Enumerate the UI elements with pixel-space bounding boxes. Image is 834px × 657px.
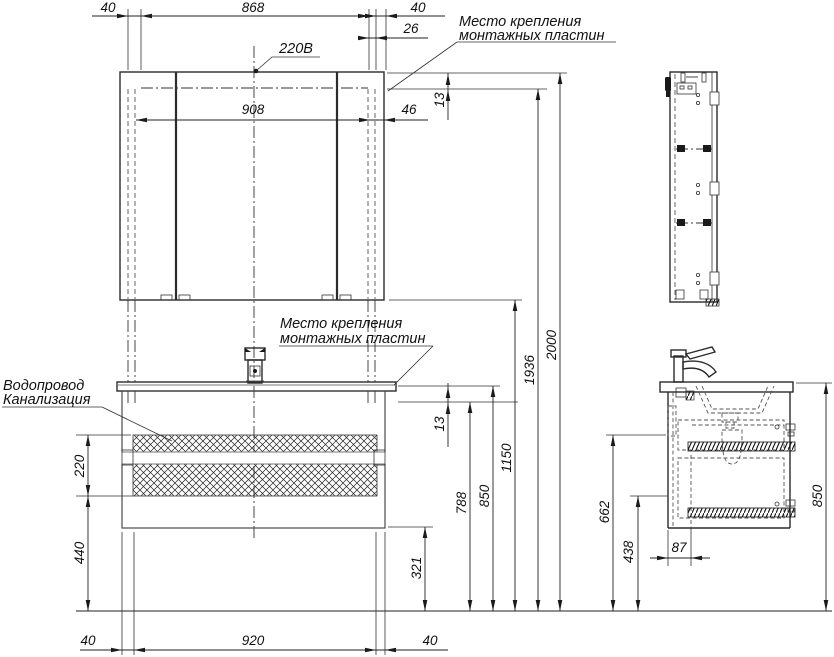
dim-height-cabinet-bottom: 321 [409,557,424,580]
door-bottom-hinges [161,295,351,300]
dim-mirror-width: 908 [242,102,265,117]
drawers-side [673,392,795,528]
dim-plate-gap-mid: 13 [432,416,447,432]
dim-side-clearance: 438 [621,540,636,563]
dimension-lines [80,16,826,650]
dim-utility-zone-height: 220 [72,454,87,478]
dim-bottom-right-offset: 40 [422,633,438,648]
dim-height-total: 2000 [544,329,559,361]
drawer-slide-lower [688,508,795,517]
power-leader [256,57,320,71]
label-mount-mid-line2: монтажных пластин [280,331,425,347]
faucet-side [671,347,716,382]
hanging-bracket [665,73,706,97]
drawer-gap-band [121,452,386,464]
dim-side-utility-height: 662 [597,500,612,523]
bottom-fittings [676,290,719,306]
dim-clearance-below: 440 [72,541,87,564]
mount-mid-leader [394,346,433,385]
label-sewerage: Канализация [3,392,91,408]
label-mount-top-line2: монтажных пластин [459,28,604,44]
dim-mirror-right-inset: 46 [401,102,417,117]
dim-top-right-offset: 40 [410,0,426,15]
dim-plate-width: 26 [402,21,419,36]
faucet-front [245,348,265,383]
dim-height-plates: 1936 [522,354,537,385]
dim-side-inset: 87 [671,540,687,555]
faucet-lever [686,347,715,359]
dim-top-span: 868 [242,0,265,15]
dim-bottom-span: 920 [242,633,265,648]
drawer-slide-upper [688,442,795,451]
dim-bottom-left-offset: 40 [80,633,96,648]
technical-drawing: 40 868 40 26 908 46 13 13 2000 1936 1150… [0,0,834,657]
screw-marks [696,93,699,284]
utility-zone-hatch [133,435,377,496]
dim-side-height: 850 [810,484,825,507]
hinge-block [665,77,671,91]
dim-height-vanity-plates: 788 [454,491,469,514]
dim-height-vanity-top: 850 [477,484,492,507]
label-mount-mid-line1: Место крепления [280,316,402,332]
dim-plate-gap-top: 13 [432,92,447,108]
mirror-cabinet-side [665,72,719,306]
vanity-side [660,347,795,528]
label-power-outlet: 220В [278,41,313,57]
dim-top-left-offset: 40 [100,0,116,15]
mirror-cabinet-front [120,72,384,404]
shelves-side [676,145,712,226]
washbasin-top-side [660,382,793,392]
extension-lines [76,9,832,655]
dim-height-mirror-bottom: 1150 [499,443,514,473]
faucet-spout [683,361,716,377]
